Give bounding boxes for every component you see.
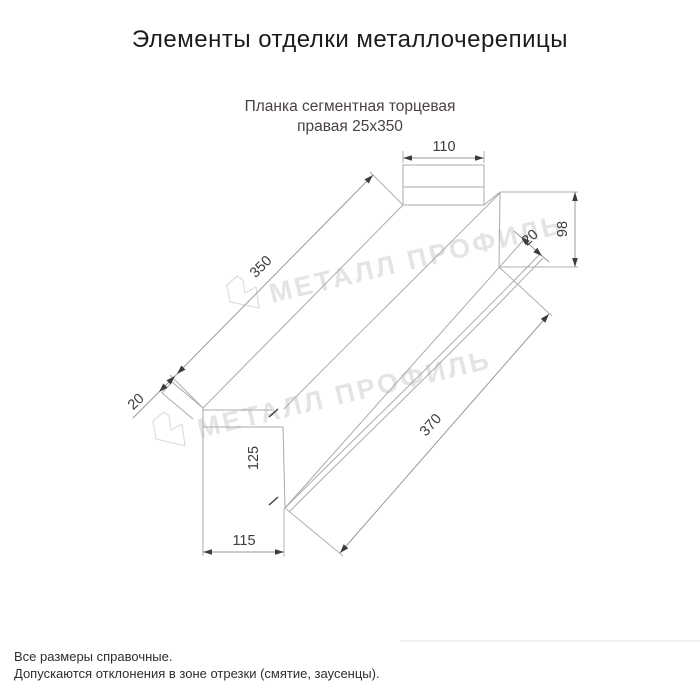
metall-profil-logo-icon	[227, 276, 259, 308]
dimension-20-left: 20	[125, 374, 177, 418]
technical-drawing: МЕТАЛЛ ПРОФИЛЬ МЕТАЛЛ ПРОФИЛЬ 110	[0, 0, 700, 700]
watermark-text: МЕТАЛЛ ПРОФИЛЬ	[266, 209, 566, 309]
dimension-115-label: 115	[232, 533, 255, 549]
dimension-125-label: 125	[246, 446, 262, 470]
dimension-110-label: 110	[432, 139, 455, 155]
end-cap-top-view	[403, 165, 484, 205]
dimension-370-label: 370	[417, 411, 445, 440]
dimension-98-label: 98	[555, 221, 571, 237]
footer-notes: Все размеры справочные. Допускаются откл…	[14, 648, 380, 682]
dimension-20-left-label: 20	[125, 391, 148, 414]
watermark-upper: МЕТАЛЛ ПРОФИЛЬ	[227, 209, 566, 309]
footer-note-1: Все размеры справочные.	[14, 648, 380, 665]
dimension-115: 115	[203, 533, 284, 555]
metall-profil-logo-icon	[153, 412, 185, 446]
dimension-350-label: 350	[247, 253, 275, 281]
dimension-110: 110	[403, 139, 484, 163]
watermark-text: МЕТАЛЛ ПРОФИЛЬ	[194, 344, 494, 444]
footer-note-2: Допускаются отклонения в зоне отрезки (с…	[14, 665, 380, 682]
